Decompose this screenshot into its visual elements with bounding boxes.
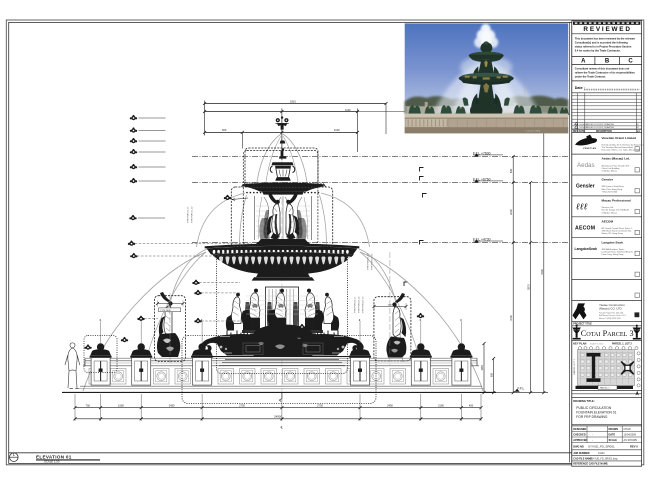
- svg-text:relieve the Trade Contractor o: relieve the Trade Contractor of its resp…: [575, 70, 636, 74]
- svg-text:Macau Professional: Macau Professional: [602, 199, 631, 203]
- svg-text:LangdonSeah: LangdonSeah: [575, 247, 597, 251]
- svg-text:TYPE FWSC01-03: TYPE FWSC01-03: [363, 296, 365, 314]
- svg-text:DRAWN: DRAWN: [609, 428, 619, 431]
- svg-text:CHAD: CHAD: [624, 428, 631, 431]
- svg-text:Executive Offices - L2, Taipa,: Executive Offices - L2, Taipa, Macau SAR: [602, 149, 641, 152]
- svg-text:SCALE: SCALE: [609, 439, 618, 442]
- svg-text:℄: ℄: [280, 426, 283, 430]
- svg-text:COTAI PARCEL 3: COTAI PARCEL 3: [581, 329, 634, 338]
- svg-text:DWG NO: DWG NO: [573, 445, 584, 448]
- svg-text:FOR FRP DRAWING: FOR FRP DRAWING: [576, 415, 608, 419]
- svg-text:C: C: [628, 59, 633, 65]
- svg-text:F.F.L: F.F.L: [518, 386, 525, 390]
- svg-text:Macau T (853) 2870 3113: Macau T (853) 2870 3113: [599, 318, 621, 320]
- svg-text:DATE: DATE: [579, 130, 586, 133]
- svg-text:138 Shatin Rural Committee Rd,: 138 Shatin Rural Committee Rd,: [602, 230, 632, 233]
- svg-text:PARCEL 1, LOT 2: PARCEL 1, LOT 2: [612, 343, 632, 346]
- svg-text:ℓℓℓ: ℓℓℓ: [576, 201, 588, 211]
- svg-text:TYPE FWFC01-01: TYPE FWFC01-01: [188, 206, 190, 224]
- svg-text:Gensler: Gensler: [576, 184, 595, 190]
- svg-text:1500: 1500: [118, 403, 124, 407]
- svg-text:SCALE 1:50: SCALE 1:50: [44, 460, 60, 464]
- svg-text:2730: 2730: [317, 403, 323, 407]
- svg-text:DESCRIPTION: DESCRIPTION: [596, 131, 612, 133]
- svg-text:Date :: Date :: [575, 86, 585, 90]
- svg-text:AS SHOWN: AS SHOWN: [624, 439, 638, 442]
- svg-text:KEY PLAN: KEY PLAN: [573, 342, 586, 346]
- svg-text:SYVUE_FD_SR001.dwg: SYVUE_FD_SR001.dwg: [591, 458, 618, 461]
- svg-text:Landmark East, 100 How Ming St: Landmark East, 100 How Ming St,: [602, 251, 634, 254]
- svg-text:1100: 1100: [334, 128, 340, 132]
- svg-text:R E V I E W E D: R E V I E W E D: [583, 26, 630, 33]
- svg-text:ISSUED FOR FRP DRAWING: ISSUED FOR FRP DRAWING: [586, 126, 614, 129]
- svg-text:1100: 1100: [345, 108, 351, 112]
- svg-text:TYPE FWSC01-01: TYPE FWSC01-01: [355, 296, 357, 314]
- svg-text:AECOM: AECOM: [602, 219, 614, 223]
- svg-text:750: 750: [86, 403, 91, 407]
- svg-text:BY: BY: [637, 131, 641, 133]
- svg-text:5.4 for action by the Trade Co: 5.4 for action by the Trade Contractor.: [575, 49, 621, 53]
- svg-text:TYPE REF.: TYPE REF.: [160, 310, 171, 312]
- svg-text:FOUNTAIN ELEVATION 01: FOUNTAIN ELEVATION 01: [576, 410, 616, 414]
- svg-text:24900: 24900: [274, 415, 282, 419]
- svg-text:TYPE FWSC01-02: TYPE FWSC01-02: [359, 296, 361, 314]
- svg-text:A: A: [581, 59, 586, 65]
- svg-text:This document has been reviewe: This document has been reviewed by the r…: [575, 37, 635, 41]
- svg-text:(Macau) CO. LTD.: (Macau) CO. LTD.: [599, 307, 623, 311]
- svg-text:The Venetian Macao-Resort-Hote: The Venetian Macao-Resort-Hotel: [602, 146, 634, 149]
- svg-text:Kwun Tong, Hong Kong: Kwun Tong, Hong Kong: [602, 254, 625, 256]
- svg-text:VENETIAN: VENETIAN: [583, 147, 596, 150]
- svg-text:APPROVED: APPROVED: [573, 439, 587, 442]
- svg-text:TYPE FWSC01-04: TYPE FWSC01-04: [368, 253, 370, 271]
- svg-text:2030: 2030: [509, 209, 513, 215]
- svg-text:Aedas: Aedas: [577, 162, 595, 169]
- svg-text:2450: 2450: [169, 403, 175, 407]
- svg-text:7600: 7600: [540, 269, 544, 275]
- svg-text:600: 600: [222, 128, 227, 132]
- svg-text:TYPE FWFC01-02: TYPE FWFC01-02: [192, 206, 194, 224]
- svg-text:JOB NUMBER:: JOB NUMBER:: [573, 452, 590, 455]
- svg-text:31123: 31123: [598, 452, 605, 455]
- svg-text:Aedas (Macau) Ltd.: Aedas (Macau) Ltd.: [602, 157, 631, 161]
- svg-text:2190: 2190: [438, 403, 444, 407]
- svg-text:Gensler: Gensler: [602, 178, 614, 182]
- svg-text:DESIGNED: DESIGNED: [573, 428, 586, 431]
- svg-text:Services Ltd.: Services Ltd.: [602, 206, 614, 209]
- svg-text:288 Queen's Road East,: 288 Queen's Road East,: [602, 185, 625, 188]
- svg-text:Rua de Xangai 175, Edf ACM: Rua de Xangai 175, Edf ACM: [602, 209, 629, 212]
- svg-text:℄: ℄: [419, 318, 422, 322]
- svg-text:ISSUED FOR FRP DRAWING: ISSUED FOR FRP DRAWING: [586, 123, 614, 126]
- svg-text:Avenida da Praia Grande 409,: Avenida da Praia Grande 409,: [602, 164, 630, 167]
- svg-text:CHECKED: CHECKED: [573, 434, 586, 437]
- svg-text:℄: ℄: [358, 318, 361, 322]
- svg-text:DATE: DATE: [609, 434, 616, 437]
- svg-text:under the Trade Contract.: under the Trade Contract.: [575, 74, 606, 78]
- svg-text:REV 0: REV 0: [630, 444, 638, 448]
- svg-text:17 Andar, Macau: 17 Andar, Macau: [602, 211, 618, 214]
- svg-text:2450: 2450: [387, 403, 393, 407]
- svg-text:℄: ℄: [99, 318, 102, 322]
- svg-text:T 852.2527.6300: T 852.2527.6300: [602, 191, 619, 193]
- svg-text:PUBLIC CIRCULATION: PUBLIC CIRCULATION: [576, 406, 612, 410]
- svg-text:10/04/2009: 10/04/2009: [624, 434, 637, 437]
- svg-text:KC: KC: [636, 127, 639, 129]
- svg-text:DRAWING TITLE:: DRAWING TITLE:: [573, 399, 594, 403]
- svg-text:© r.lacroix 2004: © r.lacroix 2004: [525, 130, 541, 133]
- svg-text:Shatin, NT, Hong Kong: Shatin, NT, Hong Kong: [602, 232, 624, 235]
- svg-text:SYVUE_FD_SR001: SYVUE_FD_SR001: [588, 444, 615, 448]
- svg-text:650: 650: [491, 372, 494, 377]
- svg-text:Consultant(s) and is accorded: Consultant(s) and is accorded the follow…: [575, 41, 628, 45]
- svg-text:status referred to in Project: status referred to in Project Procedure …: [575, 45, 632, 49]
- svg-text:℄: ℄: [459, 318, 462, 322]
- svg-text:KC: KC: [636, 124, 639, 126]
- svg-text:AECOM: AECOM: [575, 225, 595, 231]
- svg-text:REV: REV: [573, 131, 578, 133]
- svg-text:1850: 1850: [481, 365, 484, 371]
- svg-text:450: 450: [469, 403, 474, 407]
- svg-text:SCALE 1:2500: SCALE 1:2500: [590, 343, 604, 346]
- svg-text:4730: 4730: [509, 315, 513, 321]
- svg-text:PARCEL 3: PARCEL 3: [600, 386, 610, 389]
- svg-text:Estrada da Baia de N. Senhora: Estrada da Baia de N. Senhora da Esperan…: [602, 143, 645, 146]
- svg-text:21 Andar, Macau: 21 Andar, Macau: [602, 170, 618, 173]
- svg-text:840: 840: [509, 168, 513, 173]
- svg-text:Edf Macau Finance Centre 11-C,: Edf Macau Finance Centre 11-C,: [599, 314, 627, 317]
- svg-text:Langdon Seah: Langdon Seah: [602, 240, 623, 244]
- svg-text:TYPE FWSC01-05: TYPE FWSC01-05: [372, 253, 374, 271]
- svg-text:B: B: [605, 59, 610, 65]
- svg-text:PARCEL 1, LOT 1: PARCEL 1, LOT 1: [573, 359, 576, 374]
- svg-text:38/F AIA Kowloon Tower,: 38/F AIA Kowloon Tower,: [602, 248, 625, 251]
- svg-text:Venetian Orient Limited: Venetian Orient Limited: [602, 136, 637, 140]
- svg-text:1100: 1100: [388, 304, 393, 306]
- svg-text:1: 1: [13, 453, 15, 457]
- svg-text:8/F Grand Central Plaza Tower: 8/F Grand Central Plaza Tower 2,: [602, 227, 633, 230]
- svg-text:2730: 2730: [239, 403, 245, 407]
- svg-text:REFERENCE CAD FILE NAME:: REFERENCE CAD FILE NAME:: [573, 462, 608, 465]
- svg-text:1815: 1815: [290, 100, 296, 104]
- svg-text:Consultant review of this docu: Consultant review of this document does …: [575, 66, 630, 70]
- svg-text:2870: 2870: [527, 284, 531, 290]
